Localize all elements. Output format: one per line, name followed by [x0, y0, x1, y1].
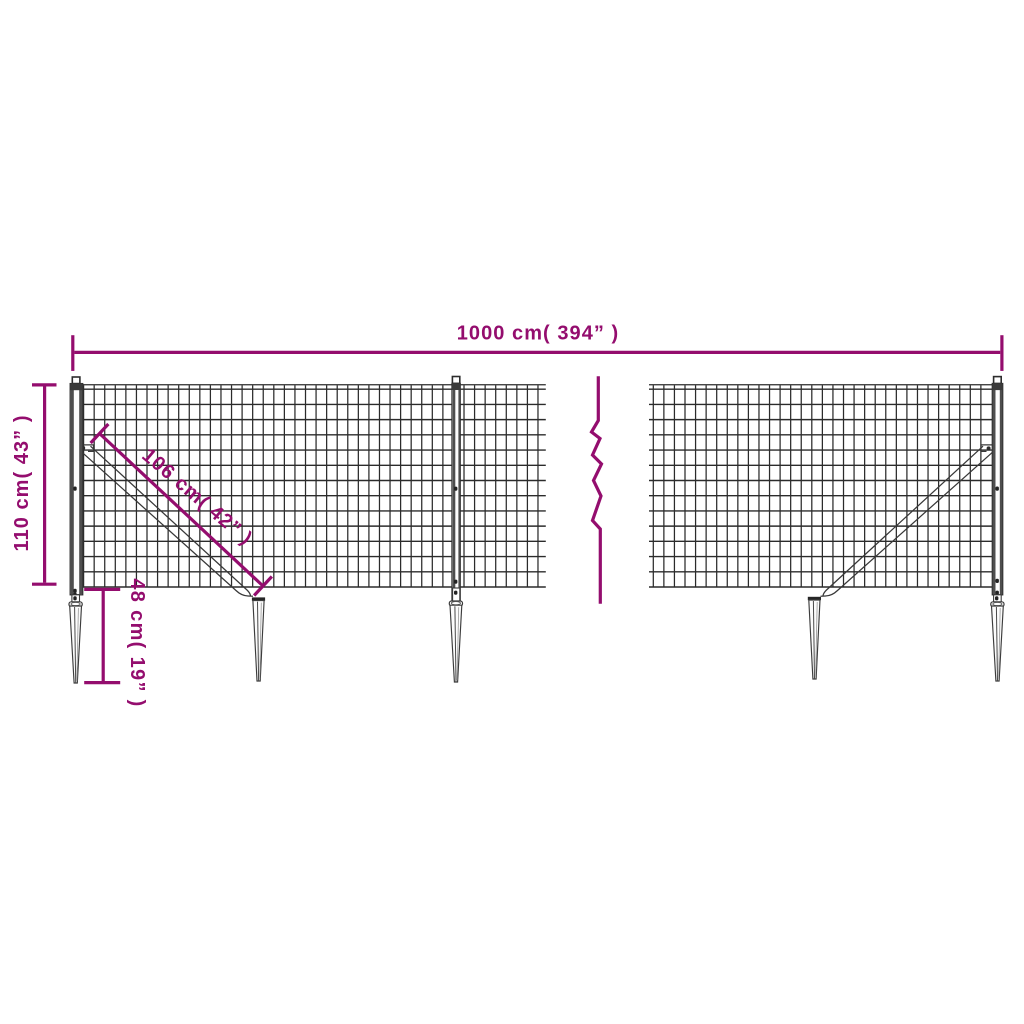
svg-text:48 cm( 19” ): 48 cm( 19” ): [126, 578, 148, 707]
svg-text:1000 cm( 394” ): 1000 cm( 394” ): [457, 323, 620, 345]
svg-text:110 cm( 43” ): 110 cm( 43” ): [11, 414, 33, 551]
